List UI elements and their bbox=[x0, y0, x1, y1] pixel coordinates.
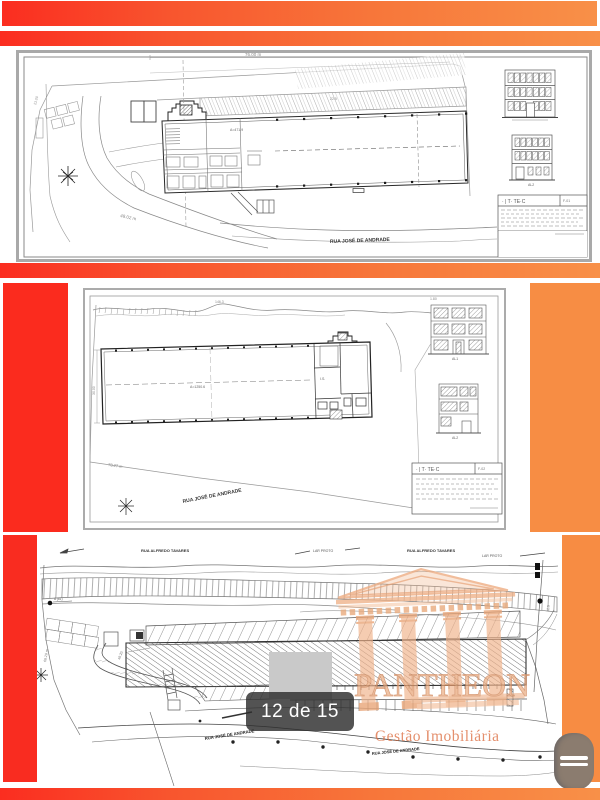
svg-text:PANTHEON: PANTHEON bbox=[354, 668, 530, 704]
svg-text:78.27 m: 78.27 m bbox=[108, 462, 124, 469]
svg-text:21.00: 21.00 bbox=[33, 96, 39, 106]
svg-text:Gestão Imobiliária: Gestão Imobiliária bbox=[375, 728, 499, 745]
svg-text:RUA ALFREDO TAVARES: RUA ALFREDO TAVARES bbox=[141, 548, 189, 553]
svg-text:I.S.: I.S. bbox=[320, 377, 325, 381]
svg-text:76.00 m: 76.00 m bbox=[245, 53, 262, 57]
svg-text:RUA JOSÉ DE ANDRADE: RUA JOSÉ DE ANDRADE bbox=[204, 728, 255, 741]
svg-text:LAR PROTO: LAR PROTO bbox=[313, 549, 333, 553]
svg-text:146.3: 146.3 bbox=[215, 300, 224, 304]
svg-text:RUA JOSÉ DE ANDRADE: RUA JOSÉ DE ANDRADE bbox=[330, 235, 391, 245]
svg-text:RUA JOSÉ DE ANDRADE: RUA JOSÉ DE ANDRADE bbox=[182, 486, 243, 505]
svg-text:AL2: AL2 bbox=[528, 183, 534, 187]
svg-text:F-01: F-01 bbox=[563, 199, 570, 203]
svg-text:· | T· TE·C: · | T· TE·C bbox=[502, 199, 526, 205]
svg-text:A (81): A (81) bbox=[54, 597, 63, 601]
svg-text:AL2: AL2 bbox=[452, 436, 458, 440]
svg-text:68.20 m: 68.20 m bbox=[43, 649, 49, 662]
svg-text:A=1250.6: A=1250.6 bbox=[190, 385, 205, 389]
svg-text:22.5: 22.5 bbox=[330, 97, 337, 101]
svg-text:30.00: 30.00 bbox=[92, 386, 96, 395]
svg-text:· | T· TE·C: · | T· TE·C bbox=[416, 467, 440, 473]
svg-text:A=471.9: A=471.9 bbox=[230, 128, 243, 132]
svg-text:1.80: 1.80 bbox=[430, 297, 437, 301]
svg-text:AL1: AL1 bbox=[452, 357, 458, 361]
svg-text:F-02: F-02 bbox=[478, 467, 485, 471]
svg-text:48.02 m: 48.02 m bbox=[120, 213, 137, 221]
svg-text:48.20: 48.20 bbox=[117, 651, 124, 661]
